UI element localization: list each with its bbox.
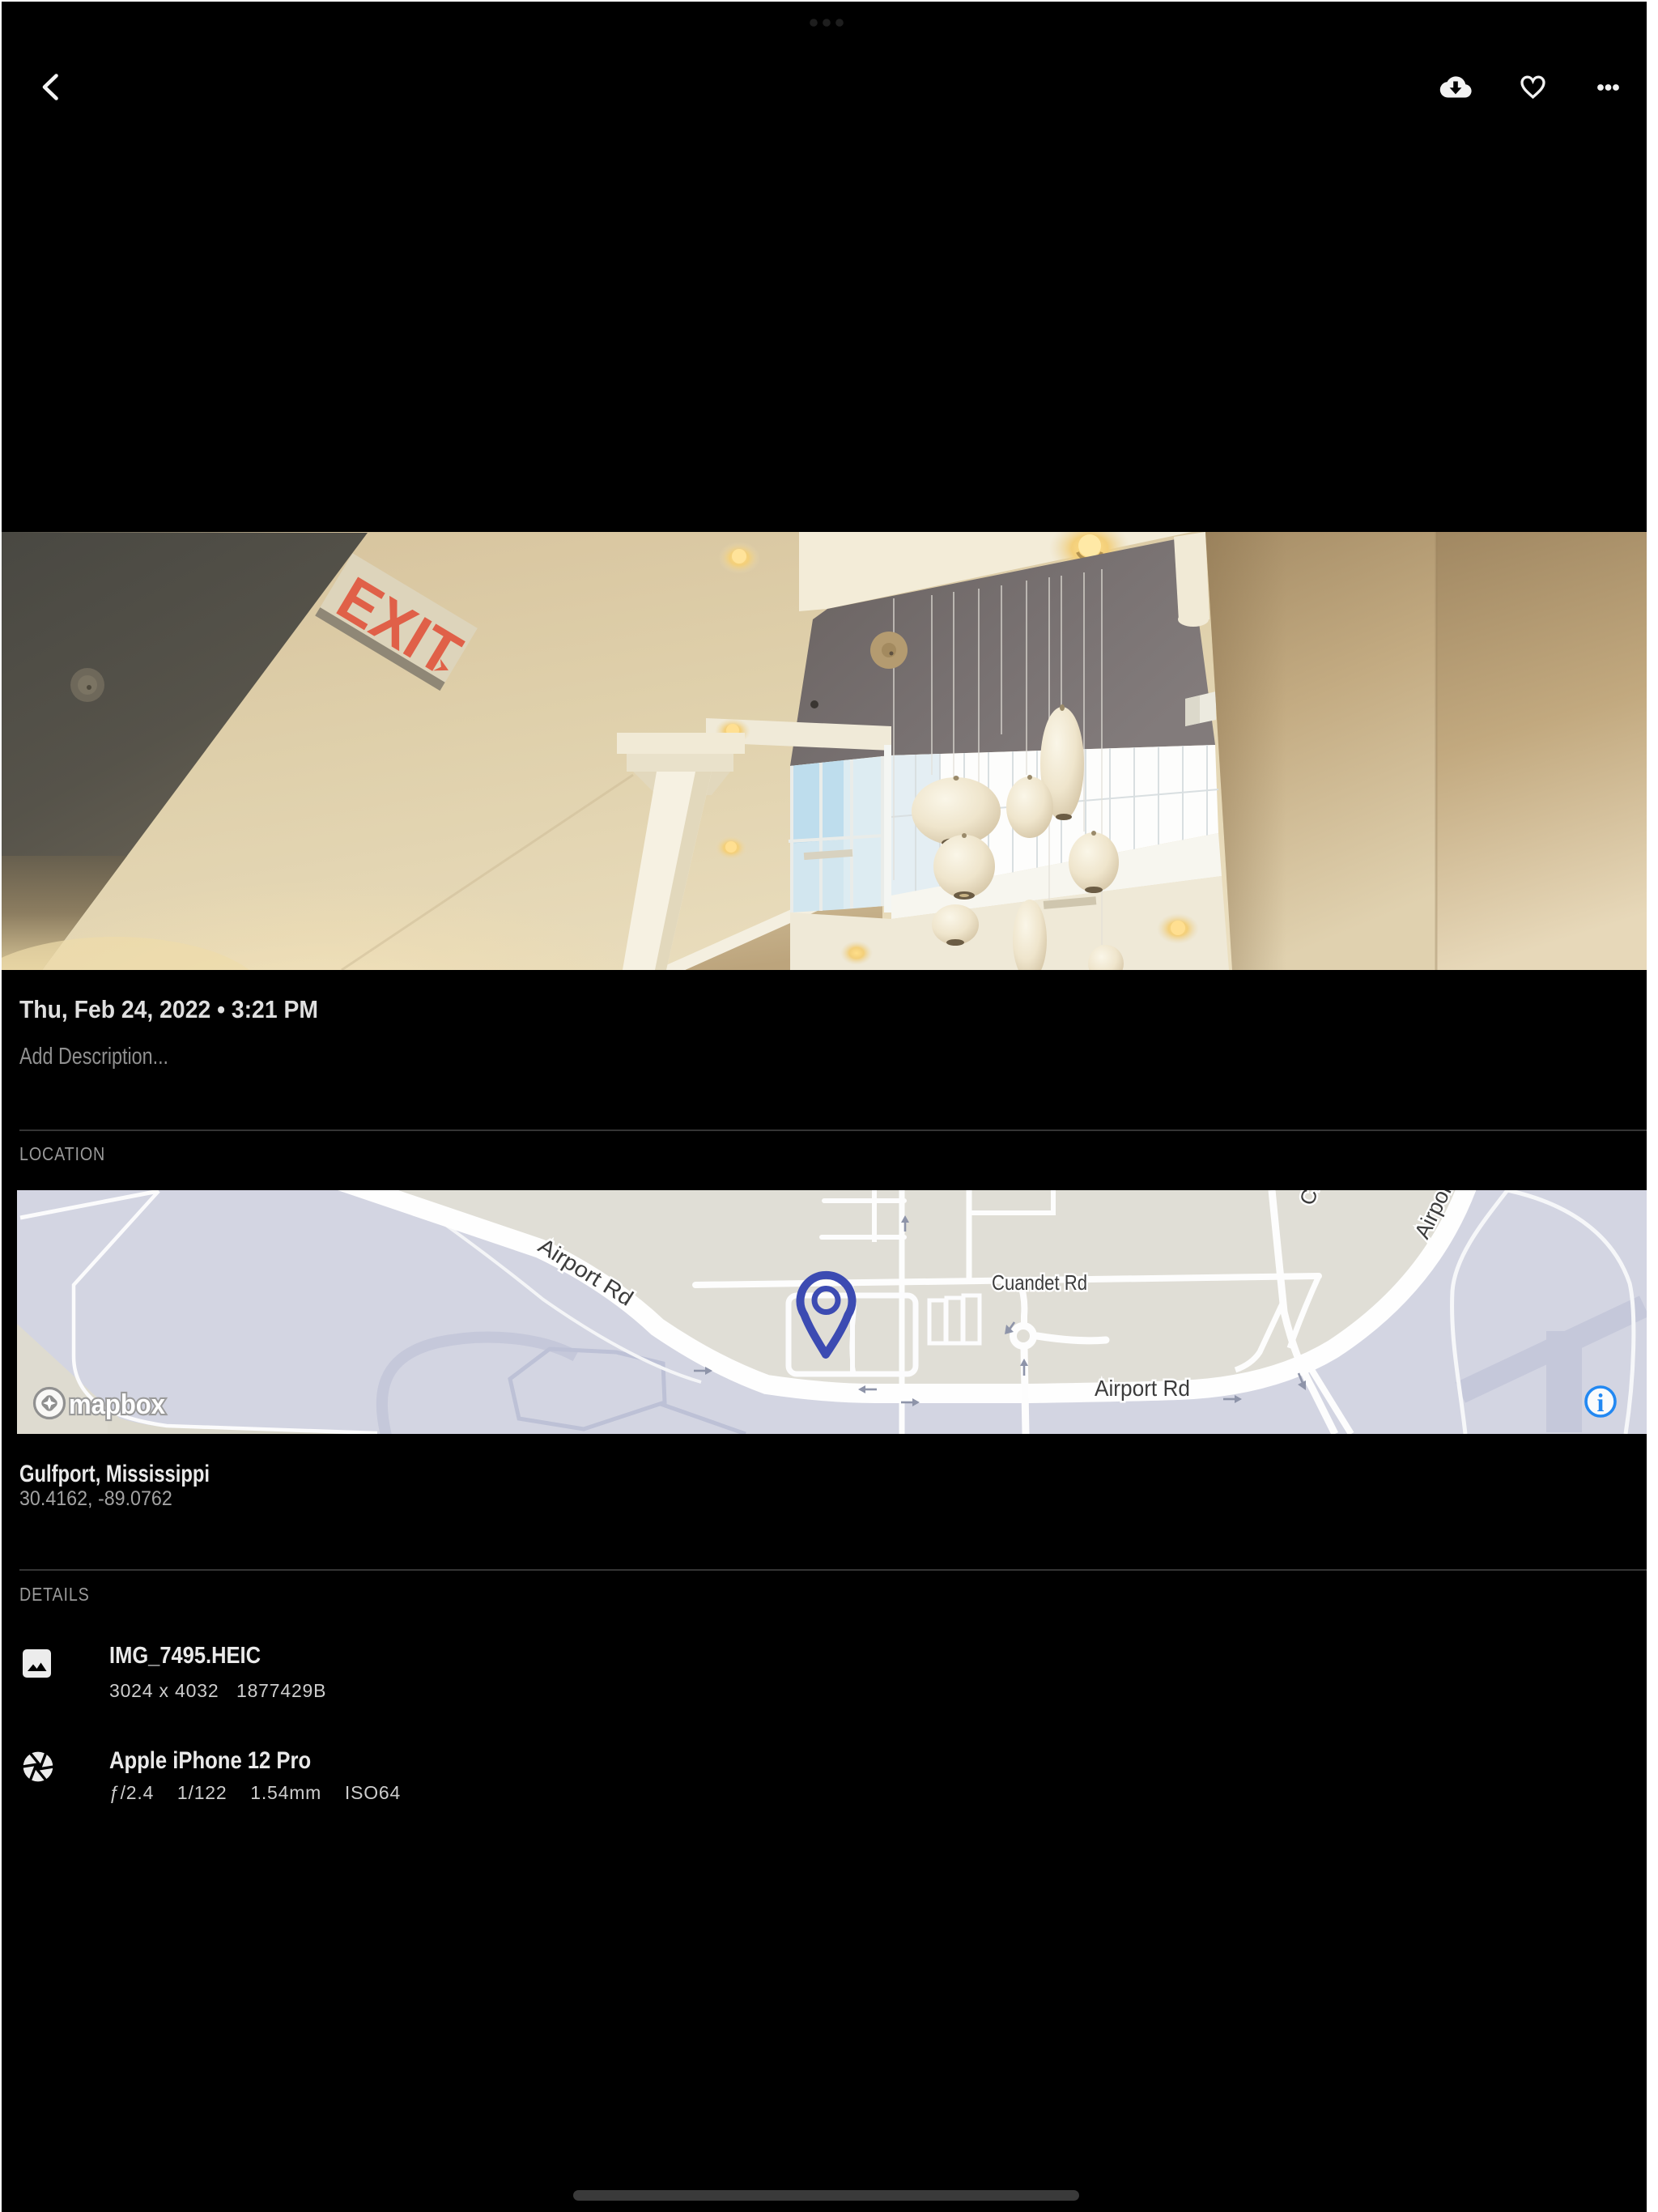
svg-text:i: i [1597,1388,1605,1417]
svg-text:mapbox: mapbox [69,1389,165,1420]
svg-text:Airport Rd: Airport Rd [1095,1376,1190,1401]
svg-text:Cuandet Rd: Cuandet Rd [992,1270,1087,1295]
